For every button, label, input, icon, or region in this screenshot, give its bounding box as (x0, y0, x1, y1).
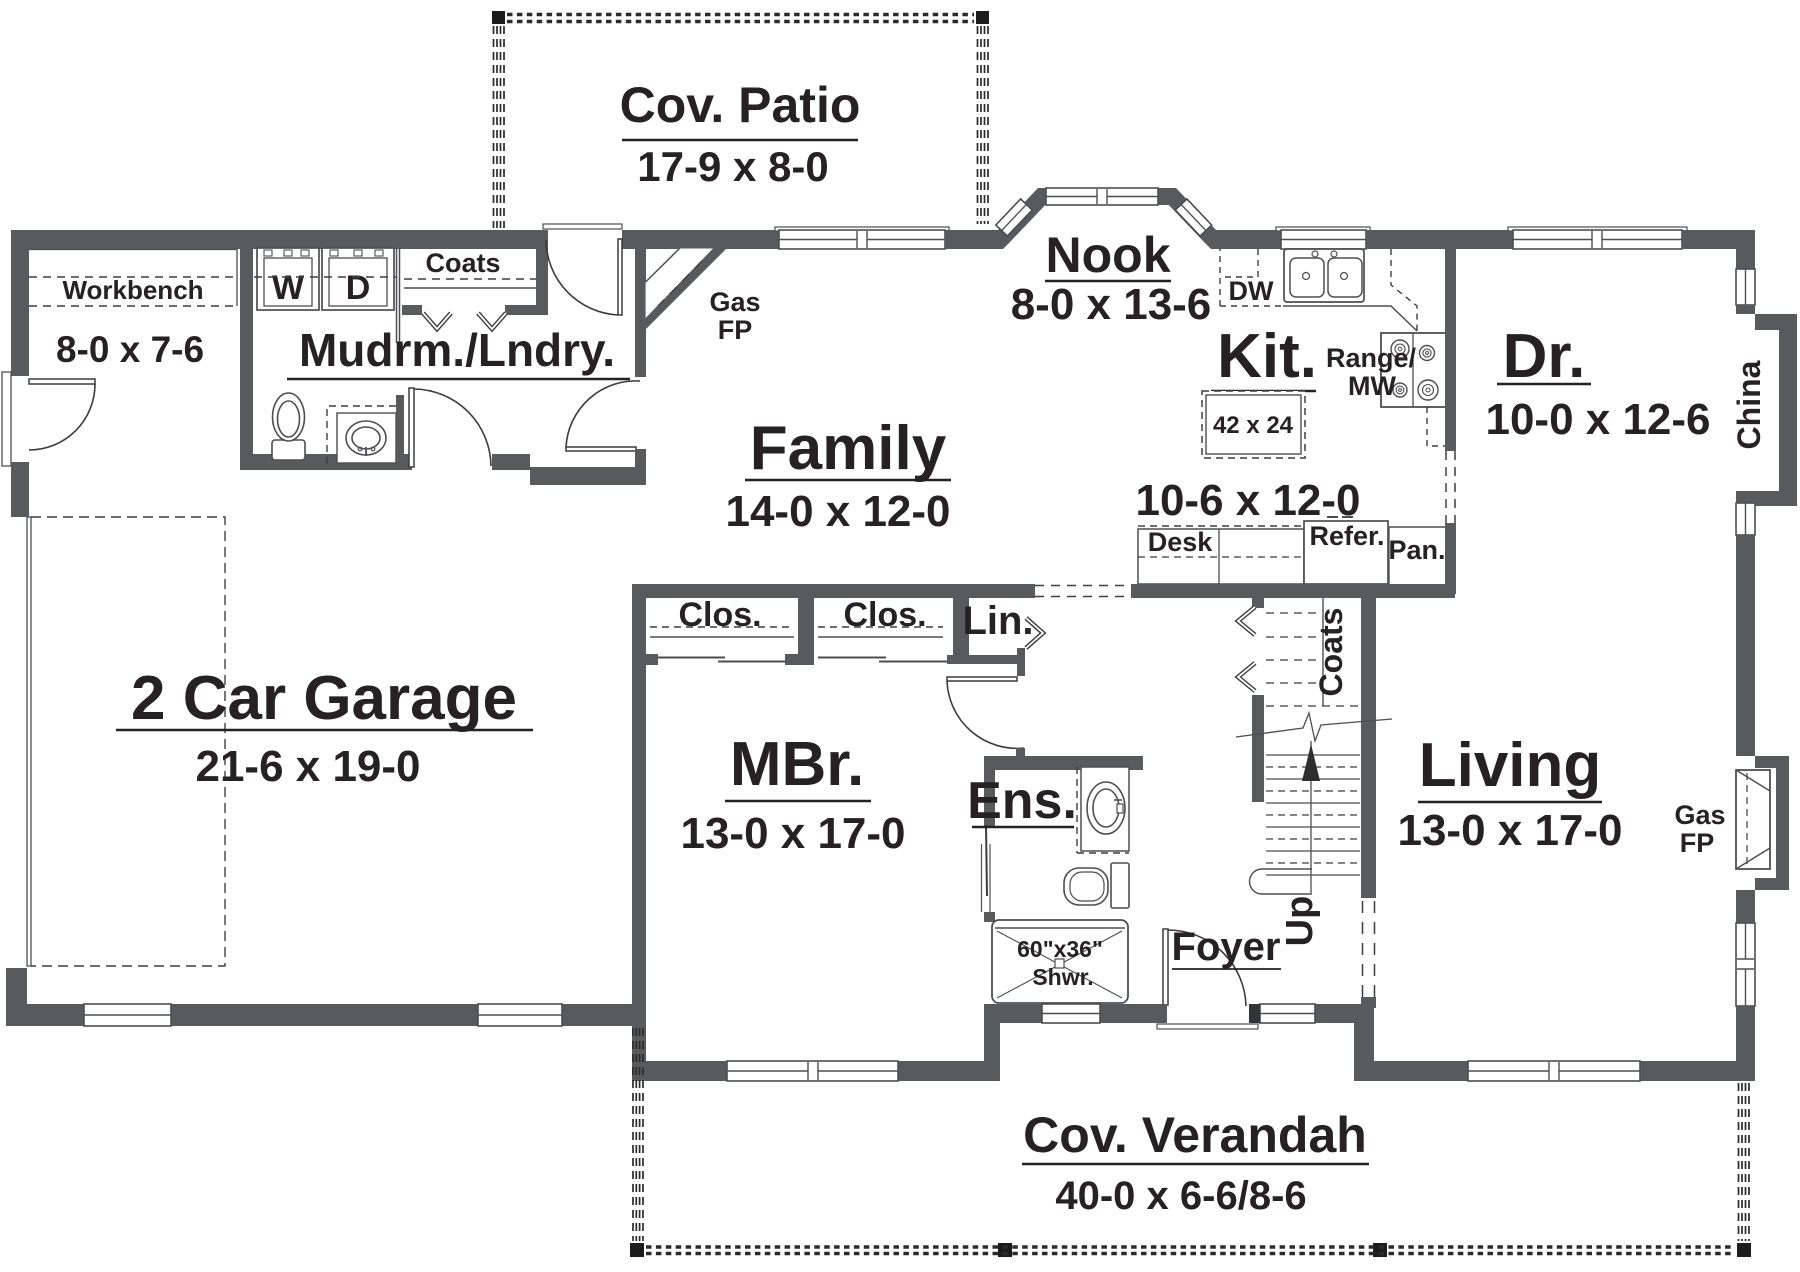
svg-text:MW: MW (1348, 371, 1396, 401)
svg-text:60"x36": 60"x36" (1017, 936, 1103, 962)
svg-text:14-0 x 12-0: 14-0 x 12-0 (725, 487, 950, 536)
svg-text:10-6 x 12-0: 10-6 x 12-0 (1135, 476, 1360, 525)
svg-text:10-0 x 12-6: 10-0 x 12-6 (1485, 395, 1710, 444)
svg-text:17-9 x 8-0: 17-9 x 8-0 (637, 143, 828, 190)
svg-text:8-0 x 13-6: 8-0 x 13-6 (1011, 280, 1212, 329)
svg-text:13-0 x 17-0: 13-0 x 17-0 (680, 809, 905, 858)
svg-text:China: China (1731, 360, 1767, 449)
svg-text:Cov. Patio: Cov. Patio (620, 77, 861, 133)
svg-text:FP: FP (718, 315, 753, 345)
svg-text:Gas: Gas (1674, 800, 1725, 830)
svg-text:DW: DW (1229, 276, 1274, 306)
svg-text:D: D (346, 269, 371, 307)
svg-text:Up: Up (1279, 896, 1321, 947)
svg-text:Gas: Gas (709, 287, 760, 317)
svg-text:21-6 x 19-0: 21-6 x 19-0 (195, 742, 420, 791)
svg-text:Clos.: Clos. (678, 596, 761, 634)
svg-text:Dr.: Dr. (1503, 322, 1586, 391)
svg-text:Living: Living (1419, 731, 1602, 800)
svg-text:13-0 x 17-0: 13-0 x 17-0 (1397, 806, 1622, 855)
svg-text:Nook: Nook (1046, 227, 1171, 283)
svg-text:Kit.: Kit. (1217, 322, 1317, 391)
svg-text:FP: FP (1680, 828, 1715, 858)
svg-text:Desk: Desk (1148, 527, 1214, 557)
svg-text:Lin.: Lin. (962, 599, 1033, 643)
svg-text:42 x 24: 42 x 24 (1213, 412, 1294, 439)
svg-text:Shwr.: Shwr. (1032, 964, 1093, 990)
svg-text:Mudrm./Lndry.: Mudrm./Lndry. (299, 324, 615, 376)
svg-text:Coats: Coats (1313, 608, 1349, 697)
svg-text:Clos.: Clos. (843, 596, 926, 634)
svg-text:40-0 x 6-6/8-6: 40-0 x 6-6/8-6 (1055, 1174, 1306, 1218)
svg-text:Family: Family (750, 414, 947, 483)
svg-text:8-0 x 7-6: 8-0 x 7-6 (56, 329, 204, 370)
svg-text:Refer.: Refer. (1309, 521, 1384, 551)
svg-text:Ens.: Ens. (967, 772, 1077, 830)
svg-text:Workbench: Workbench (62, 275, 203, 305)
svg-text:Coats: Coats (425, 248, 500, 278)
svg-text:Foyer: Foyer (1172, 925, 1281, 969)
svg-text:Range/: Range/ (1326, 343, 1417, 373)
svg-text:W: W (272, 269, 305, 307)
svg-text:2 Car Garage: 2 Car Garage (131, 664, 517, 733)
svg-text:MBr.: MBr. (730, 730, 864, 799)
svg-text:Pan.: Pan. (1388, 535, 1445, 565)
svg-text:Cov. Verandah: Cov. Verandah (1023, 1107, 1367, 1163)
